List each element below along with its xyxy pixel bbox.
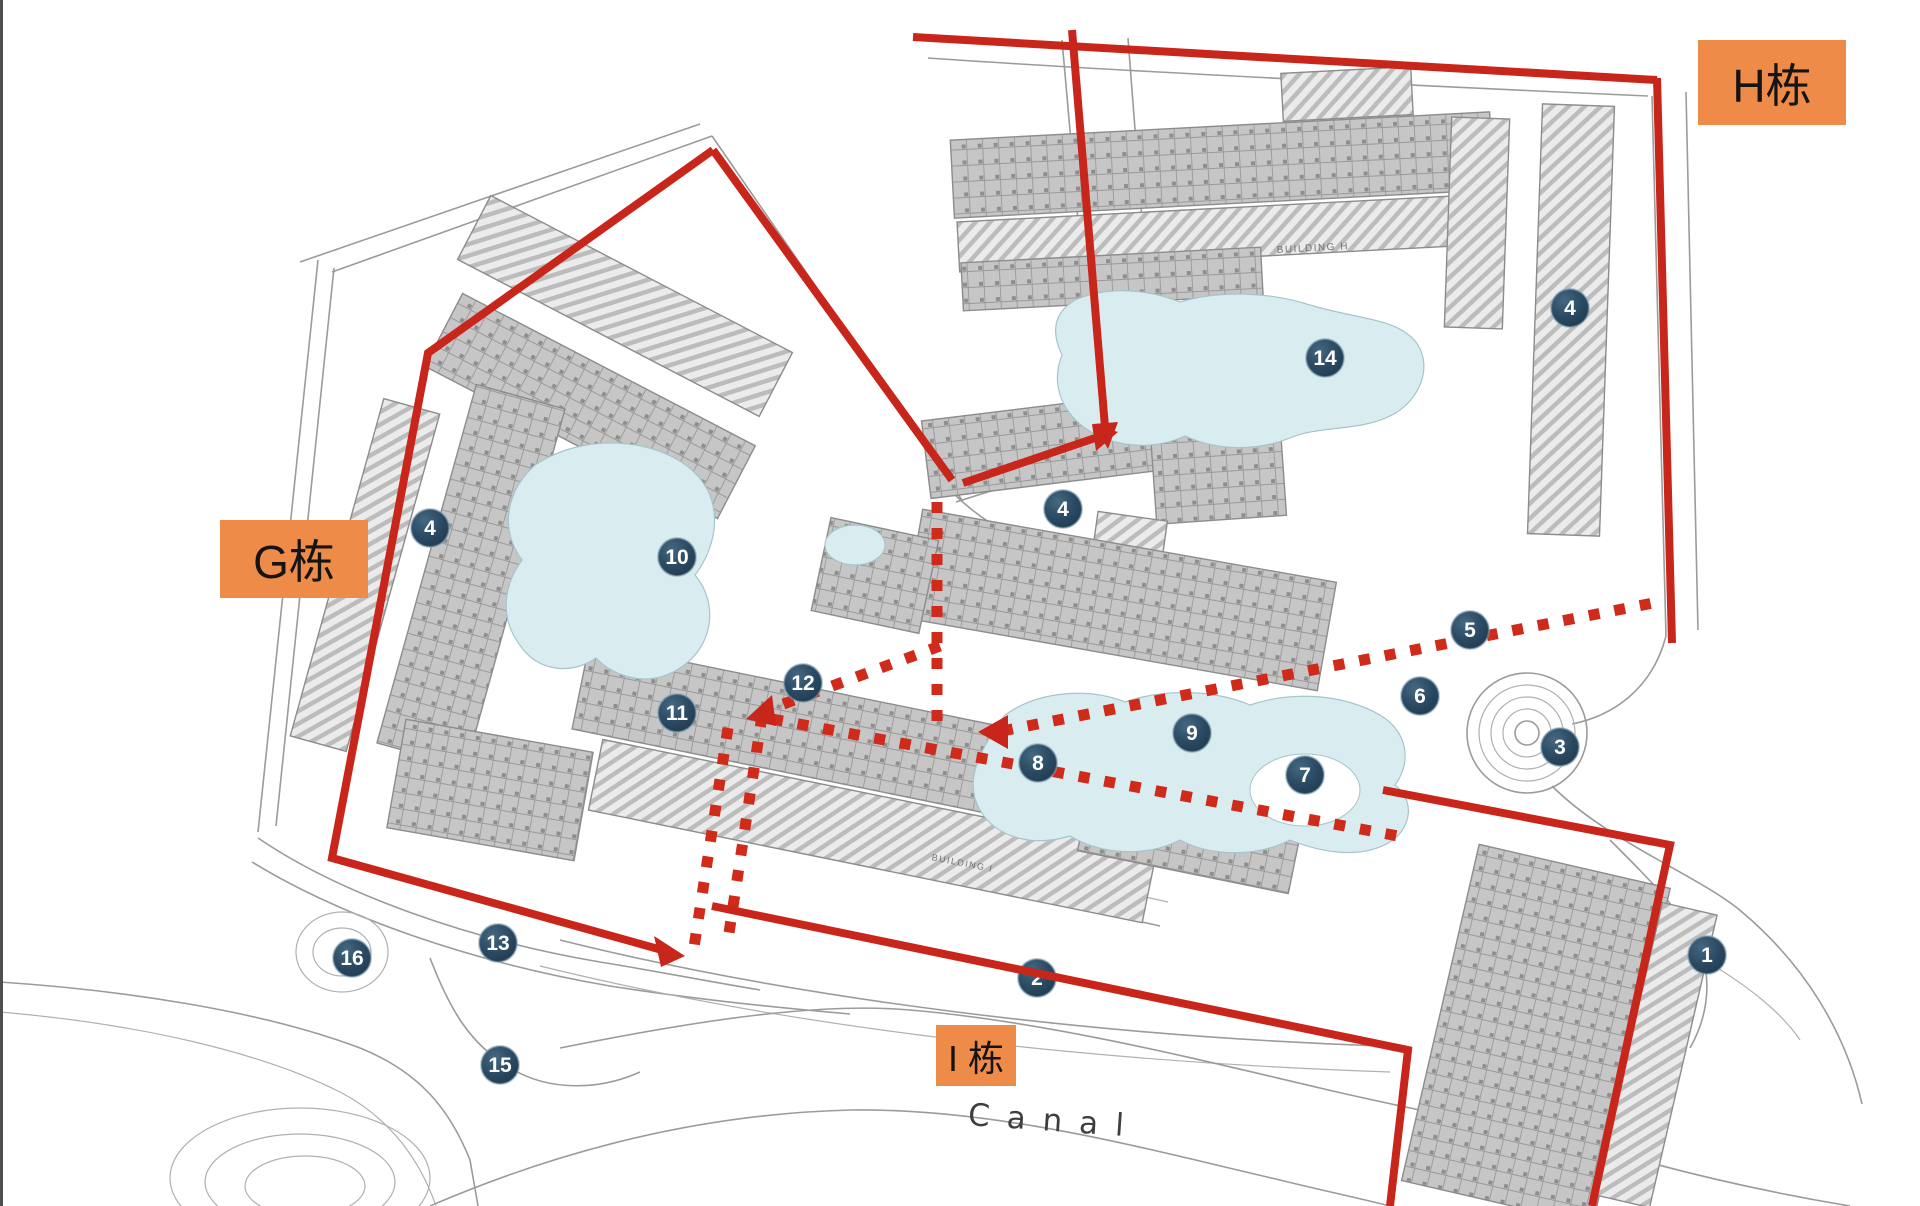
marker-4: 4 [411, 509, 449, 547]
svg-text:4: 4 [1564, 297, 1576, 320]
marker-7: 7 [1286, 756, 1324, 794]
svg-text:15: 15 [488, 1054, 512, 1077]
svg-text:4: 4 [424, 517, 436, 540]
marker-15: 15 [481, 1046, 519, 1084]
svg-text:14: 14 [1313, 347, 1337, 370]
marker-4: 4 [1044, 490, 1082, 528]
parking-h-topright [1281, 67, 1413, 122]
marker-12: 12 [784, 664, 822, 702]
marker-8: 8 [1019, 744, 1057, 782]
svg-text:5: 5 [1464, 619, 1476, 642]
marker-10: 10 [658, 538, 696, 576]
svg-text:11: 11 [666, 702, 689, 725]
svg-text:3: 3 [1554, 736, 1566, 759]
marker-16: 16 [333, 939, 371, 977]
marker-13: 13 [479, 924, 517, 962]
marker-6: 6 [1401, 677, 1439, 715]
svg-text:9: 9 [1186, 722, 1198, 745]
svg-text:16: 16 [340, 947, 363, 970]
building-g-south [387, 719, 593, 860]
page-edge-line [0, 0, 3, 1206]
site-plan-page: BUILDING H BUILDING I 123444567891011121… [0, 0, 1920, 1206]
svg-text:6: 6 [1414, 685, 1426, 708]
marker-14: 14 [1306, 339, 1344, 377]
marker-3: 3 [1541, 728, 1579, 766]
svg-text:10: 10 [665, 546, 688, 569]
zone-label-h: H栋 [1698, 40, 1846, 125]
marker-11: 11 [658, 694, 696, 732]
zone-label-g: G栋 [220, 520, 368, 598]
svg-text:13: 13 [486, 932, 509, 955]
zone-label-i: I 栋 [936, 1025, 1016, 1086]
svg-text:12: 12 [791, 672, 814, 695]
svg-text:1: 1 [1701, 944, 1713, 967]
marker-9: 9 [1173, 714, 1211, 752]
parking-h-east-2 [1444, 117, 1509, 329]
marker-4: 4 [1551, 289, 1589, 327]
pool-small [825, 525, 885, 565]
marker-5: 5 [1451, 611, 1489, 649]
svg-text:7: 7 [1299, 764, 1311, 787]
marker-1: 1 [1688, 936, 1726, 974]
svg-text:4: 4 [1057, 498, 1069, 521]
svg-text:8: 8 [1032, 752, 1044, 775]
